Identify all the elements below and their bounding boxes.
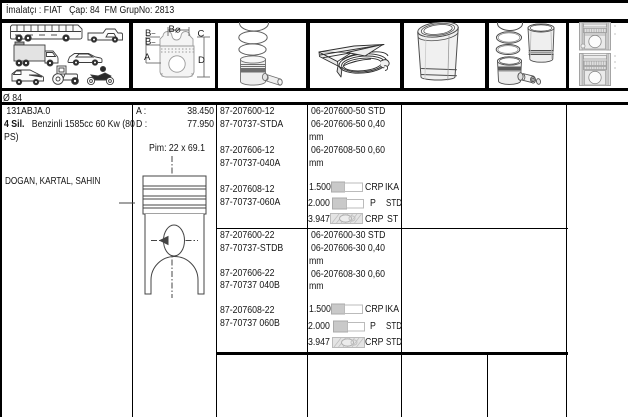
svg-text:A: A [144, 52, 151, 63]
svg-text:‒: ‒ [152, 31, 156, 38]
svg-text:‒: ‒ [152, 39, 156, 46]
svg-text:B: B [169, 24, 175, 35]
svg-text:C: C [198, 29, 205, 40]
svg-text:⌀: ⌀ [175, 25, 181, 36]
svg-text:B: B [145, 37, 151, 48]
svg-text:D: D [198, 55, 205, 66]
